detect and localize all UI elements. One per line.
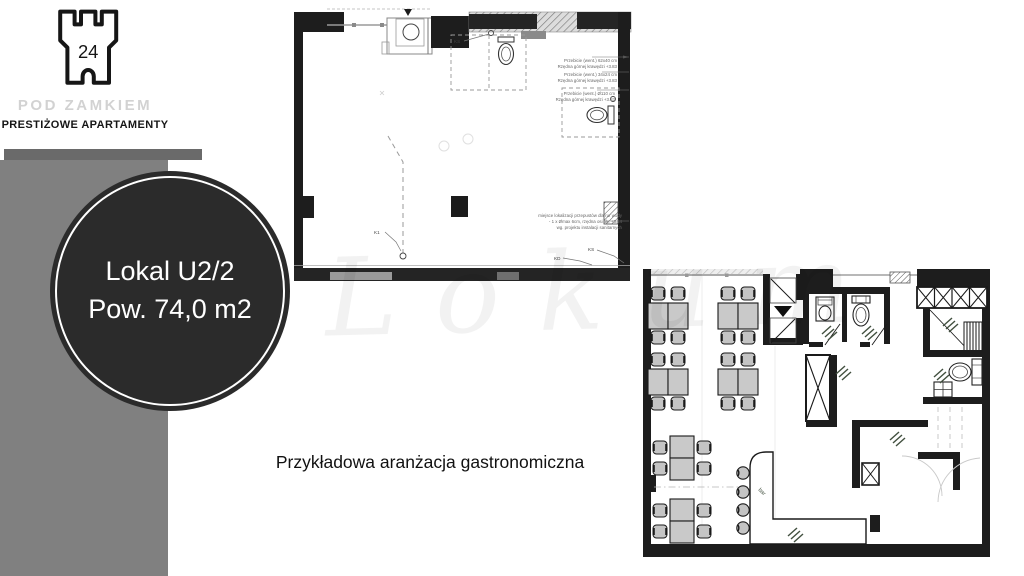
toilet-symbol-right xyxy=(949,359,982,385)
bar-stool xyxy=(737,486,749,498)
room-label-scribble xyxy=(943,318,958,332)
shaft-x-central xyxy=(806,355,837,427)
sink-symbol xyxy=(816,297,834,321)
brand-tagline: PRESTIŻOWE APARTAMENTY xyxy=(0,119,170,131)
toilet-symbol xyxy=(852,296,870,326)
sink-grid-symbol xyxy=(934,382,952,397)
room-label-scribble xyxy=(934,369,949,383)
bar-stool xyxy=(737,504,749,516)
dining-table-group xyxy=(648,353,688,410)
brand-block: 24 POD ZAMKIEM PRESTIŻOWE APARTAMENTY xyxy=(0,0,200,160)
drain-line-k1: K1 xyxy=(374,136,406,259)
svg-text:Przebicie (went.) Ø110 cm: Przebicie (went.) Ø110 cm xyxy=(564,91,616,96)
room-label-scribble xyxy=(836,366,851,380)
room-label-scribble xyxy=(890,432,905,446)
brand-name: POD ZAMKIEM xyxy=(0,97,170,114)
utility-room xyxy=(382,18,432,54)
bar-stool xyxy=(737,467,749,479)
shaft-xxxx-band xyxy=(917,287,987,308)
entrance-vestibule xyxy=(763,274,803,345)
column-x xyxy=(862,463,879,485)
tech-walls xyxy=(294,9,631,281)
unit-info-text: Lokal U2/2 Pow. 74,0 m2 xyxy=(88,253,252,329)
svg-text:Rzędna górnej krawędzi +3.83: Rzędna górnej krawędzi +3.83 xyxy=(558,64,618,69)
unit-info-badge: Lokal U2/2 Pow. 74,0 m2 xyxy=(50,171,290,411)
gray-divider-bar xyxy=(4,149,202,160)
dining-table-group xyxy=(648,287,688,344)
unit-area: Pow. 74,0 m2 xyxy=(88,291,252,329)
label-ks-bottom: KS xyxy=(588,247,594,252)
kd-ks-bottom: KD KS xyxy=(554,247,624,265)
svg-text:Rzędna górnej krawędzi +3.83: Rzędna górnej krawędzi +3.83 xyxy=(558,78,618,83)
plan-caption: Przykładowa aranżacja gastronomiczna xyxy=(255,452,605,473)
room-label-scribble xyxy=(862,326,877,340)
wc-rooms xyxy=(803,287,890,347)
label-kd: KD xyxy=(554,256,561,261)
faint-marks xyxy=(380,91,473,151)
floor-plan-technical: K1 KS Przebicie (went.) 62x40 cm Rzędna … xyxy=(292,6,634,288)
dining-table-group xyxy=(718,287,758,344)
column xyxy=(451,196,468,217)
svg-text:wg. projektu instalacji sanita: wg. projektu instalacji sanitarnych xyxy=(557,225,623,230)
svg-text:Rzędna górnej krawędzi +3.83: Rzędna górnej krawędzi +3.83 xyxy=(556,97,616,102)
dining-table-group xyxy=(718,353,758,410)
logo-number: 24 xyxy=(78,41,98,62)
label-ks-top: KS xyxy=(454,39,460,44)
bar-stool xyxy=(737,522,749,534)
marketing-page: 24 POD ZAMKIEM PRESTIŻOWE APARTAMENTY Lo… xyxy=(0,0,1024,576)
castle-logo-icon: 24 xyxy=(33,2,137,98)
svg-text:Przebicie (went.) 62x40 cm: Przebicie (went.) 62x40 cm xyxy=(564,58,617,63)
floor-plan-gastronomy: bar xyxy=(640,266,992,558)
toilet-top-symbol xyxy=(489,31,515,65)
stairs-stripes xyxy=(964,322,982,351)
room-label-scribble xyxy=(822,326,837,340)
svg-text:Przebicie (went.) 34x24 cm: Przebicie (went.) 34x24 cm xyxy=(564,72,617,77)
svg-text:- 1 x Ømax 6cm, rzędna osi ok.: - 1 x Ømax 6cm, rzędna osi ok. +3.14 xyxy=(549,219,623,224)
annotation-water: miejsce lokalizacji przepustów dla rur w… xyxy=(538,213,629,230)
svg-text:miejsce lokalizacji przepustów: miejsce lokalizacji przepustów dla rur w… xyxy=(538,213,623,218)
label-k1: K1 xyxy=(374,230,380,235)
annotation-vent3: Przebicie (went.) Ø110 cm Rzędna górnej … xyxy=(556,90,629,102)
unit-number: Lokal U2/2 xyxy=(88,253,252,291)
entrance-arrow-icon xyxy=(774,306,792,317)
